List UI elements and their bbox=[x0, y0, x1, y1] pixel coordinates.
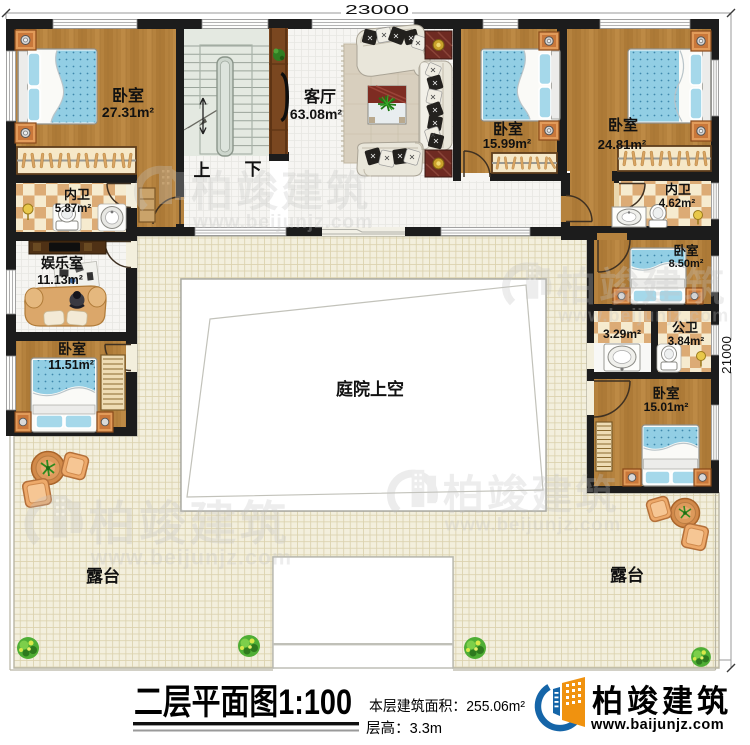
svg-text:卧室: 卧室 bbox=[112, 86, 144, 105]
svg-text:客厅: 客厅 bbox=[304, 87, 336, 106]
svg-text:娱乐室: 娱乐室 bbox=[41, 255, 83, 271]
svg-text:卧室: 卧室 bbox=[608, 116, 638, 134]
svg-text:24.81m²: 24.81m² bbox=[598, 137, 647, 152]
svg-text:15.01m²: 15.01m² bbox=[644, 400, 689, 414]
svg-text:63.08m²: 63.08m² bbox=[290, 106, 342, 122]
svg-text:内卫: 内卫 bbox=[665, 182, 691, 197]
svg-text:本层建筑面积：255.06m²: 本层建筑面积：255.06m² bbox=[369, 698, 525, 715]
svg-text:21000: 21000 bbox=[719, 336, 734, 374]
svg-text:23000: 23000 bbox=[345, 2, 409, 17]
svg-text:卧室: 卧室 bbox=[653, 385, 681, 401]
svg-text:柏竣建筑: 柏竣建筑 bbox=[592, 684, 732, 719]
svg-text:下: 下 bbox=[245, 160, 262, 179]
svg-text:4.62m²: 4.62m² bbox=[659, 198, 696, 210]
svg-text:上: 上 bbox=[194, 161, 211, 180]
svg-text:11.51m²: 11.51m² bbox=[48, 358, 94, 372]
svg-text:庭院上空: 庭院上空 bbox=[336, 379, 404, 399]
svg-text:www.baijunjz.com: www.baijunjz.com bbox=[590, 717, 724, 733]
svg-text:3.29m²: 3.29m² bbox=[603, 327, 641, 341]
svg-text:内卫: 内卫 bbox=[64, 187, 90, 202]
svg-text:5.87m²: 5.87m² bbox=[55, 203, 92, 215]
svg-text:露台: 露台 bbox=[610, 565, 644, 585]
svg-text:露台: 露台 bbox=[86, 566, 120, 586]
svg-text:层高：3.3m: 层高：3.3m bbox=[366, 720, 442, 737]
svg-text:卧室: 卧室 bbox=[673, 243, 699, 258]
svg-text:公卫: 公卫 bbox=[672, 320, 698, 335]
svg-text:8.50m²: 8.50m² bbox=[669, 258, 704, 270]
svg-text:二层平面图1:100: 二层平面图1:100 bbox=[134, 683, 352, 722]
svg-text:27.31m²: 27.31m² bbox=[102, 104, 154, 120]
svg-text:11.13m²: 11.13m² bbox=[37, 273, 83, 287]
svg-text:15.99m²: 15.99m² bbox=[483, 136, 532, 151]
svg-text:卧室: 卧室 bbox=[58, 341, 86, 357]
svg-text:3.84m²: 3.84m² bbox=[668, 336, 705, 348]
